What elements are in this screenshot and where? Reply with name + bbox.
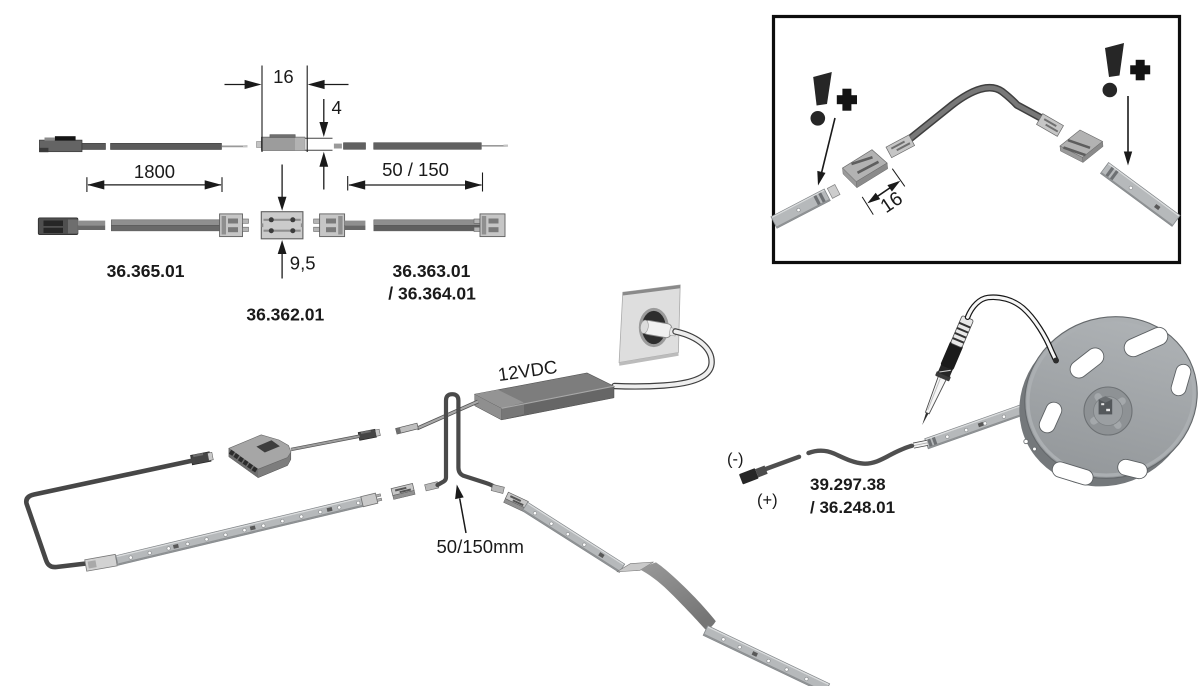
svg-text:50 / 150: 50 / 150: [382, 159, 449, 180]
svg-text:36.365.01: 36.365.01: [107, 261, 185, 281]
svg-text:39.297.38: 39.297.38: [810, 475, 886, 494]
svg-text:(+): (+): [757, 492, 778, 510]
svg-text:/ 36.248.01: / 36.248.01: [810, 498, 895, 517]
svg-text:(-): (-): [727, 450, 743, 468]
svg-text:1800: 1800: [134, 161, 175, 182]
svg-text:9,5: 9,5: [290, 253, 316, 274]
svg-text:4: 4: [332, 97, 342, 118]
svg-text:36.363.01: 36.363.01: [393, 261, 471, 281]
svg-text:50/150mm: 50/150mm: [437, 536, 524, 557]
svg-text:36.362.01: 36.362.01: [246, 304, 324, 324]
svg-text:16: 16: [273, 66, 294, 87]
svg-text:/ 36.364.01: / 36.364.01: [388, 284, 476, 304]
